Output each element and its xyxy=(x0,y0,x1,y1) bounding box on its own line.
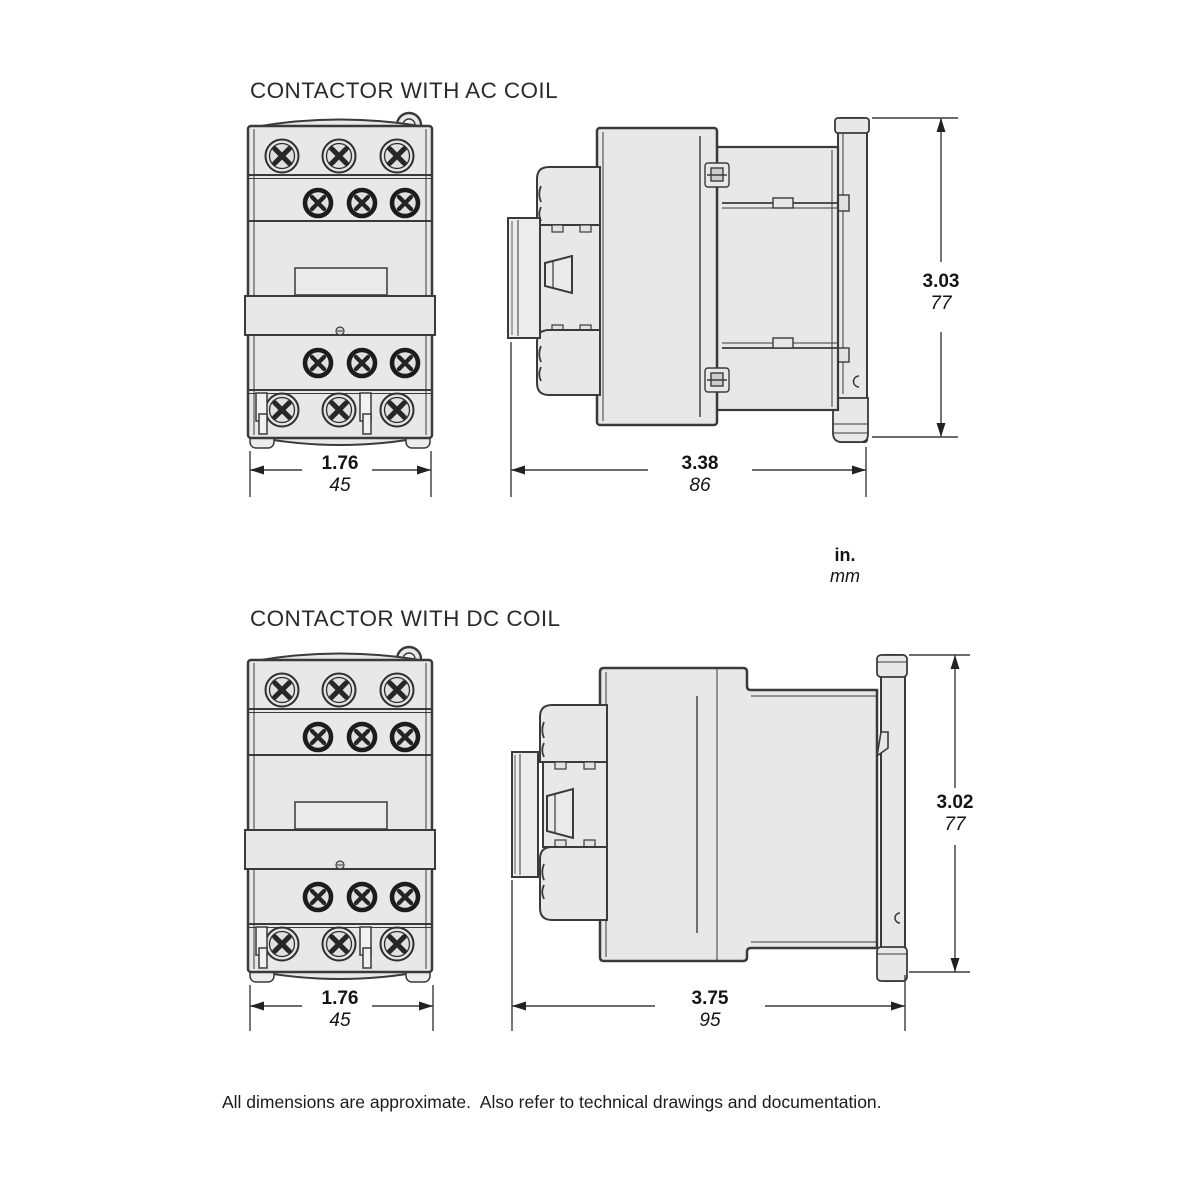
dc-depth-inches: 3.75 xyxy=(650,989,770,1008)
dimensional-drawing-page: CONTACTOR WITH AC COIL xyxy=(0,0,1200,1200)
units-primary-label: in. xyxy=(785,546,905,564)
dc-front-width-mm: 45 xyxy=(280,1011,400,1030)
ac-height-mm: 77 xyxy=(881,294,1001,313)
dc-front-view-drawing xyxy=(240,640,440,985)
ac-depth-mm: 86 xyxy=(640,476,760,495)
ac-depth-inches: 3.38 xyxy=(640,454,760,473)
ac-front-view-drawing xyxy=(240,106,440,451)
ac-height-inches: 3.03 xyxy=(881,272,1001,291)
dc-section-title: CONTACTOR WITH DC COIL xyxy=(250,606,560,632)
dc-side-view-drawing xyxy=(500,648,910,998)
dc-depth-mm: 95 xyxy=(650,1011,770,1030)
dc-front-width-inches: 1.76 xyxy=(280,989,400,1008)
dc-height-mm: 77 xyxy=(895,815,1015,834)
units-secondary-label: mm xyxy=(785,567,905,585)
footer-note: All dimensions are approximate. Also ref… xyxy=(222,1092,882,1113)
ac-section-title: CONTACTOR WITH AC COIL xyxy=(250,78,558,104)
ac-front-width-mm: 45 xyxy=(280,476,400,495)
ac-side-view-drawing xyxy=(495,106,880,456)
ac-front-width-inches: 1.76 xyxy=(280,454,400,473)
dc-height-inches: 3.02 xyxy=(895,793,1015,812)
